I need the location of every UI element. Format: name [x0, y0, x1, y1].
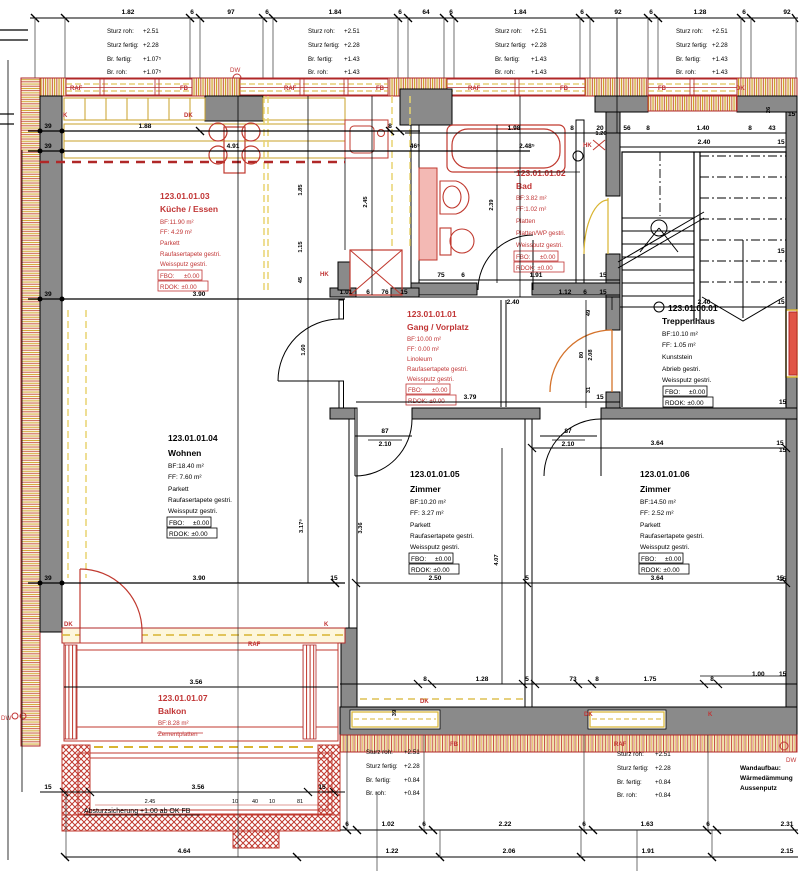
svg-text:+2.51: +2.51	[143, 28, 159, 35]
svg-text:Weissputz gestri.: Weissputz gestri.	[640, 544, 690, 551]
svg-text:Balkon: Balkon	[158, 706, 186, 716]
svg-text:15: 15	[779, 671, 787, 678]
svg-text:8: 8	[595, 676, 599, 683]
svg-text:RDOK: ±0.00: RDOK: ±0.00	[665, 400, 704, 407]
svg-text:Raufasertapete gestri.: Raufasertapete gestri.	[410, 533, 474, 540]
svg-text:Wohnen: Wohnen	[168, 448, 201, 458]
svg-text:75: 75	[437, 272, 445, 279]
svg-text:±0.00: ±0.00	[184, 273, 200, 280]
svg-text:FB: FB	[450, 742, 459, 748]
svg-text:8: 8	[388, 123, 392, 130]
svg-text:4.07: 4.07	[494, 554, 500, 565]
svg-text:FF: 1.05 m²: FF: 1.05 m²	[662, 342, 696, 349]
svg-text:+1.43: +1.43	[344, 69, 360, 76]
svg-text:1.84: 1.84	[329, 9, 342, 16]
svg-text:3.90: 3.90	[193, 575, 206, 582]
svg-text:123.01.01.06: 123.01.01.06	[640, 469, 690, 479]
svg-text:6: 6	[649, 9, 653, 16]
svg-text:39: 39	[392, 709, 398, 716]
svg-text:HK: HK	[320, 272, 329, 278]
svg-text:92: 92	[614, 9, 622, 16]
svg-text:2.48⁵: 2.48⁵	[519, 143, 535, 150]
svg-text:RDOK: ±0.00: RDOK: ±0.00	[160, 284, 197, 291]
svg-text:+2.51: +2.51	[531, 28, 547, 35]
svg-text:+2.28: +2.28	[531, 42, 547, 49]
svg-text:DK: DK	[420, 699, 429, 705]
svg-text:Br. fertig:: Br. fertig:	[366, 777, 391, 784]
svg-text:49: 49	[586, 309, 592, 316]
svg-text:1.40: 1.40	[697, 125, 710, 132]
svg-text:Sturz fertig:: Sturz fertig:	[308, 42, 340, 49]
svg-text:6: 6	[449, 9, 453, 16]
svg-text:6: 6	[265, 9, 269, 16]
svg-text:BF:3.82 m²: BF:3.82 m²	[516, 195, 547, 202]
svg-text:DW: DW	[230, 67, 240, 74]
svg-text:Sturz roh:: Sturz roh:	[366, 749, 393, 756]
svg-text:Sturz roh:: Sturz roh:	[617, 751, 644, 758]
svg-text:123.01.01.04: 123.01.01.04	[168, 433, 218, 443]
svg-text:Br. fertig:: Br. fertig:	[676, 56, 701, 63]
svg-text:RDOK: ±0.00: RDOK: ±0.00	[408, 398, 445, 405]
svg-text:15: 15	[599, 272, 607, 279]
svg-text:31: 31	[586, 386, 592, 393]
svg-text:Weissputz gestri.: Weissputz gestri.	[168, 508, 218, 515]
svg-text:15: 15	[777, 248, 785, 255]
svg-text:15: 15	[776, 440, 784, 447]
svg-text:6: 6	[190, 9, 194, 16]
svg-text:2.45: 2.45	[145, 799, 156, 805]
svg-text:BF:10.10 m²: BF:10.10 m²	[662, 331, 699, 338]
svg-text:Aussenputz: Aussenputz	[740, 785, 778, 792]
svg-text:Br. roh:: Br. roh:	[107, 69, 127, 76]
svg-text:2.40: 2.40	[698, 299, 711, 306]
svg-text:1.85: 1.85	[298, 184, 304, 196]
svg-text:Sturz fertig:: Sturz fertig:	[676, 42, 708, 49]
svg-text:1.01: 1.01	[340, 289, 353, 296]
svg-text:+2.28: +2.28	[404, 763, 420, 770]
svg-text:+2.28: +2.28	[712, 42, 728, 49]
svg-text:15: 15	[779, 399, 787, 406]
svg-text:Sturz roh:: Sturz roh:	[308, 28, 335, 35]
svg-text:±0.00: ±0.00	[435, 556, 452, 563]
svg-text:92: 92	[783, 9, 791, 16]
svg-text:+2.28: +2.28	[344, 42, 360, 49]
svg-text:Parkett: Parkett	[640, 522, 661, 529]
svg-text:15: 15	[599, 289, 607, 296]
svg-text:BF:10.20 m²: BF:10.20 m²	[410, 499, 447, 506]
svg-text:Sturz roh:: Sturz roh:	[107, 28, 134, 35]
svg-text:Weissputz gestri.: Weissputz gestri.	[662, 377, 712, 384]
svg-text:8: 8	[748, 125, 752, 132]
svg-text:+0.84: +0.84	[404, 777, 420, 784]
svg-text:+0.84: +0.84	[655, 779, 671, 786]
svg-text:Br. fertig:: Br. fertig:	[308, 56, 333, 63]
svg-text:Br. roh:: Br. roh:	[366, 790, 386, 797]
svg-text:FBO:: FBO:	[408, 387, 423, 394]
svg-text:FB: FB	[658, 86, 667, 92]
svg-text:Platten/WP gestri.: Platten/WP gestri.	[516, 230, 566, 237]
svg-text:FF:1.02 m²: FF:1.02 m²	[516, 206, 546, 213]
svg-text:15: 15	[44, 784, 52, 791]
svg-text:Zementplatten: Zementplatten	[158, 731, 198, 738]
svg-text:Raufasertapete gestri.: Raufasertapete gestri.	[168, 497, 232, 504]
svg-text:1.15: 1.15	[298, 241, 304, 253]
svg-text:Sturz roh:: Sturz roh:	[495, 28, 522, 35]
svg-text:8: 8	[570, 125, 574, 132]
svg-text:+2.51: +2.51	[655, 751, 671, 758]
svg-text:FB: FB	[180, 86, 189, 92]
svg-text:Parkett: Parkett	[160, 240, 180, 247]
svg-text:26: 26	[766, 106, 772, 113]
svg-text:+2.28: +2.28	[655, 765, 671, 772]
svg-text:Treppenhaus: Treppenhaus	[662, 316, 715, 326]
svg-text:56: 56	[623, 125, 631, 132]
svg-text:Linoleum: Linoleum	[407, 356, 432, 363]
svg-text:80: 80	[579, 352, 585, 358]
svg-text:1.91: 1.91	[642, 848, 655, 855]
svg-text:Br. fertig:: Br. fertig:	[107, 56, 132, 63]
svg-text:±0.00: ±0.00	[432, 387, 448, 394]
svg-text:FB: FB	[376, 86, 385, 92]
svg-text:FF: 7.60 m²: FF: 7.60 m²	[168, 474, 202, 481]
svg-text:1.88: 1.88	[139, 123, 152, 130]
svg-text:Raufasertapete gestri.: Raufasertapete gestri.	[160, 251, 221, 258]
svg-text:6: 6	[461, 272, 465, 279]
svg-text:Raufasertapete gestri.: Raufasertapete gestri.	[407, 366, 468, 373]
svg-text:Br. roh:: Br. roh:	[676, 69, 696, 76]
svg-text:2.06: 2.06	[503, 848, 516, 855]
svg-text:76: 76	[381, 289, 389, 296]
svg-text:15: 15	[777, 139, 785, 146]
svg-text:64: 64	[422, 9, 430, 16]
svg-text:FF: 3.27 m²: FF: 3.27 m²	[410, 510, 444, 517]
svg-text:+1.07⁵: +1.07⁵	[143, 69, 162, 76]
svg-text:BF:8.28 m²: BF:8.28 m²	[158, 720, 189, 727]
svg-text:FBO:: FBO:	[169, 520, 184, 527]
svg-text:15: 15	[596, 394, 604, 401]
svg-text:2.40: 2.40	[698, 139, 711, 146]
svg-text:10: 10	[269, 799, 275, 805]
svg-text:1.28: 1.28	[476, 676, 489, 683]
svg-text:8: 8	[646, 125, 650, 132]
svg-text:6: 6	[583, 289, 587, 296]
svg-text:Bad: Bad	[516, 181, 532, 191]
svg-text:1.75: 1.75	[644, 676, 657, 683]
svg-text:123.01.01.03: 123.01.01.03	[160, 191, 210, 201]
svg-text:1.22: 1.22	[386, 848, 399, 855]
svg-text:2.10: 2.10	[562, 441, 575, 448]
svg-text:RDOK: ±0.00: RDOK: ±0.00	[516, 265, 553, 272]
svg-text:123.01.01.02: 123.01.01.02	[516, 168, 566, 178]
svg-text:3.79: 3.79	[464, 394, 477, 401]
svg-text:RDOK: ±0.00: RDOK: ±0.00	[641, 567, 680, 574]
svg-text:Parkett: Parkett	[168, 486, 189, 493]
svg-text:Absturzsicherung +1.00 ab OK: Absturzsicherung +1.00 ab OK FB	[84, 808, 191, 815]
svg-text:Br. fertig:: Br. fertig:	[617, 779, 642, 786]
svg-text:RDOK: ±0.00: RDOK: ±0.00	[169, 531, 208, 538]
svg-text:Sturz fertig:: Sturz fertig:	[617, 765, 649, 772]
svg-text:+0.84: +0.84	[655, 792, 671, 799]
svg-text:3.64: 3.64	[651, 575, 664, 582]
svg-text:Raufasertapete gestri.: Raufasertapete gestri.	[640, 533, 704, 540]
svg-text:Wandaufbau:: Wandaufbau:	[740, 765, 781, 772]
svg-text:Sturz fertig:: Sturz fertig:	[107, 42, 139, 49]
svg-text:15: 15	[330, 575, 338, 582]
svg-text:3.17⁵: 3.17⁵	[299, 519, 305, 533]
svg-text:K: K	[63, 113, 68, 119]
svg-text:1.20: 1.20	[595, 131, 606, 137]
svg-text:1.60: 1.60	[301, 344, 307, 355]
svg-text:40: 40	[252, 799, 258, 805]
svg-text:5: 5	[525, 676, 529, 683]
svg-text:DW: DW	[1, 715, 11, 722]
svg-text:45: 45	[298, 276, 304, 283]
svg-text:1.02: 1.02	[382, 821, 395, 828]
svg-text:FB: FB	[560, 86, 569, 92]
svg-text:DK: DK	[584, 712, 593, 718]
svg-text:39: 39	[44, 123, 52, 130]
svg-text:RAF: RAF	[248, 642, 261, 648]
svg-text:2.45: 2.45	[363, 196, 369, 208]
svg-text:39: 39	[44, 575, 52, 582]
svg-text:39: 39	[44, 143, 52, 150]
svg-text:15: 15	[318, 784, 326, 791]
svg-text:15: 15	[788, 111, 796, 118]
svg-text:1.82: 1.82	[122, 9, 135, 16]
svg-text:2.39: 2.39	[489, 199, 495, 211]
svg-text:+1.07⁵: +1.07⁵	[143, 56, 162, 63]
svg-text:123.01.01.07: 123.01.01.07	[158, 693, 208, 703]
svg-text:3.90: 3.90	[193, 291, 206, 298]
svg-text:+1.43: +1.43	[712, 56, 728, 63]
svg-text:15: 15	[400, 289, 408, 296]
svg-text:K: K	[324, 622, 329, 628]
svg-text:87: 87	[381, 428, 389, 435]
svg-text:Weissputz gestri.: Weissputz gestri.	[160, 261, 207, 268]
svg-text:K: K	[708, 712, 713, 718]
svg-text:DW: DW	[786, 757, 796, 764]
svg-text:FBO:: FBO:	[160, 273, 175, 280]
svg-text:±0.00: ±0.00	[665, 556, 682, 563]
svg-text:2.10: 2.10	[379, 441, 392, 448]
svg-text:+0.84: +0.84	[404, 790, 420, 797]
svg-text:Abrieb gestri.: Abrieb gestri.	[662, 366, 700, 373]
svg-text:Zimmer: Zimmer	[640, 484, 671, 494]
svg-text:BF:18.40 m²: BF:18.40 m²	[168, 463, 205, 470]
svg-text:RDOK: ±0.00: RDOK: ±0.00	[411, 567, 450, 574]
svg-text:RAF: RAF	[284, 86, 297, 92]
svg-text:Küche / Essen: Küche / Essen	[160, 204, 218, 214]
svg-text:81: 81	[297, 799, 303, 805]
svg-text:46⁵: 46⁵	[410, 143, 420, 150]
svg-text:1.28: 1.28	[694, 9, 707, 16]
svg-text:8: 8	[710, 676, 714, 683]
svg-text:+2.28: +2.28	[143, 42, 159, 49]
svg-text:3.64: 3.64	[651, 440, 664, 447]
svg-text:1.98: 1.98	[508, 125, 521, 132]
svg-text:+1.43: +1.43	[531, 69, 547, 76]
svg-text:Weissputz gestri.: Weissputz gestri.	[516, 242, 563, 249]
svg-text:43: 43	[768, 125, 776, 132]
svg-text:15: 15	[779, 576, 787, 583]
svg-text:Weissputz gestri.: Weissputz gestri.	[407, 376, 454, 383]
svg-text:±0.00: ±0.00	[193, 520, 210, 527]
svg-text:5: 5	[525, 575, 529, 582]
svg-text:97: 97	[227, 9, 235, 16]
svg-text:DK: DK	[64, 622, 73, 628]
svg-text:1.91: 1.91	[530, 272, 543, 279]
svg-text:Sturz fertig:: Sturz fertig:	[366, 763, 398, 770]
svg-text:RAF: RAF	[468, 86, 481, 92]
svg-text:73: 73	[569, 676, 577, 683]
svg-text:Platten: Platten	[516, 218, 536, 225]
svg-text:123.01.01.01: 123.01.01.01	[407, 309, 457, 319]
svg-text:+1.43: +1.43	[712, 69, 728, 76]
svg-text:2.50: 2.50	[429, 575, 442, 582]
svg-text:Sturz fertig:: Sturz fertig:	[495, 42, 527, 49]
svg-text:123.01.00.01: 123.01.00.01	[668, 303, 718, 313]
svg-text:Br. roh:: Br. roh:	[617, 792, 637, 799]
svg-text:87: 87	[564, 428, 572, 435]
svg-text:RAF: RAF	[614, 742, 627, 748]
svg-text:±0.00: ±0.00	[689, 389, 706, 396]
svg-text:FBO:: FBO:	[665, 389, 680, 396]
svg-text:1.12: 1.12	[559, 289, 572, 296]
svg-text:10: 10	[232, 799, 238, 805]
svg-text:39: 39	[44, 291, 52, 298]
svg-text:Kunststein: Kunststein	[662, 354, 693, 361]
svg-text:+1.43: +1.43	[531, 56, 547, 63]
svg-text:+2.51: +2.51	[712, 28, 728, 35]
svg-text:3.56: 3.56	[192, 784, 205, 791]
svg-text:±0.00: ±0.00	[540, 254, 556, 261]
svg-text:2.31: 2.31	[781, 821, 794, 828]
svg-text:Gang / Vorplatz: Gang / Vorplatz	[407, 322, 469, 332]
svg-text:6: 6	[580, 9, 584, 16]
svg-text:Br. roh:: Br. roh:	[308, 69, 328, 76]
svg-text:6: 6	[398, 9, 402, 16]
svg-text:FBO:: FBO:	[516, 254, 531, 261]
svg-text:Wärmedämmung: Wärmedämmung	[740, 775, 793, 782]
svg-text:3.56: 3.56	[190, 679, 203, 686]
svg-text:2.15: 2.15	[781, 848, 794, 855]
svg-text:1.84: 1.84	[514, 9, 527, 16]
svg-text:BF:14.50 m²: BF:14.50 m²	[640, 499, 677, 506]
svg-text:6: 6	[742, 9, 746, 16]
svg-text:DK: DK	[736, 86, 745, 92]
svg-text:2.08: 2.08	[588, 349, 594, 361]
svg-text:HK: HK	[583, 143, 592, 149]
svg-text:1.63: 1.63	[641, 821, 654, 828]
svg-text:6: 6	[366, 289, 370, 296]
svg-text:RAF: RAF	[70, 86, 83, 92]
svg-text:1.00: 1.00	[752, 671, 765, 678]
svg-text:BF:11.90 m²: BF:11.90 m²	[160, 219, 194, 226]
svg-text:15: 15	[779, 447, 787, 454]
svg-text:123.01.01.05: 123.01.01.05	[410, 469, 460, 479]
svg-text:+1.43: +1.43	[344, 56, 360, 63]
svg-text:Sturz roh:: Sturz roh:	[676, 28, 703, 35]
svg-text:4.64: 4.64	[178, 848, 191, 855]
svg-text:15: 15	[777, 299, 785, 306]
svg-text:BF:10.00 m²: BF:10.00 m²	[407, 336, 441, 343]
svg-text:Zimmer: Zimmer	[410, 484, 441, 494]
svg-text:2.40: 2.40	[507, 299, 520, 306]
svg-text:Br. fertig:: Br. fertig:	[495, 56, 520, 63]
svg-text:2.22: 2.22	[499, 821, 512, 828]
svg-text:3.36: 3.36	[358, 522, 364, 534]
svg-text:FF: 2.52 m²: FF: 2.52 m²	[640, 510, 674, 517]
svg-text:FBO:: FBO:	[411, 556, 426, 563]
svg-text:Br. roh:: Br. roh:	[495, 69, 515, 76]
svg-text:FF: 0.00 m²: FF: 0.00 m²	[407, 346, 439, 353]
svg-text:FF: 4.29 m²: FF: 4.29 m²	[160, 229, 192, 236]
svg-text:FBO:: FBO:	[641, 556, 656, 563]
svg-text:Parkett: Parkett	[410, 522, 431, 529]
svg-text:Weissputz gestri.: Weissputz gestri.	[410, 544, 460, 551]
svg-text:DK: DK	[184, 113, 193, 119]
svg-text:+2.51: +2.51	[344, 28, 360, 35]
svg-text:8: 8	[423, 676, 427, 683]
svg-text:+2.51: +2.51	[404, 749, 420, 756]
